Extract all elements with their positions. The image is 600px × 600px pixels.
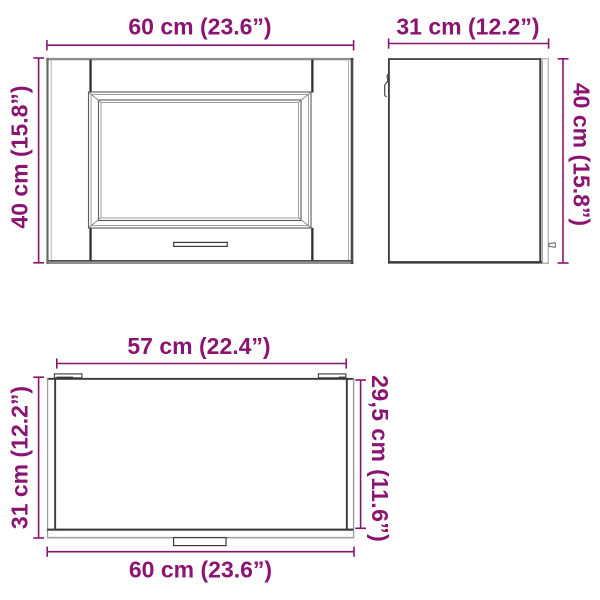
svg-text:31 cm (12.2”): 31 cm (12.2”): [6, 386, 32, 529]
svg-text:40 cm (15.8”): 40 cm (15.8”): [569, 83, 595, 226]
svg-text:29,5 cm (11.6”): 29,5 cm (11.6”): [367, 375, 393, 542]
svg-text:57 cm (22.4”): 57 cm (22.4”): [127, 333, 270, 359]
svg-text:60 cm (23.6”): 60 cm (23.6”): [128, 14, 271, 40]
svg-text:31 cm (12.2”): 31 cm (12.2”): [396, 14, 539, 40]
svg-text:60 cm (23.6”): 60 cm (23.6”): [129, 557, 272, 583]
svg-text:40 cm (15.8”): 40 cm (15.8”): [6, 85, 32, 228]
